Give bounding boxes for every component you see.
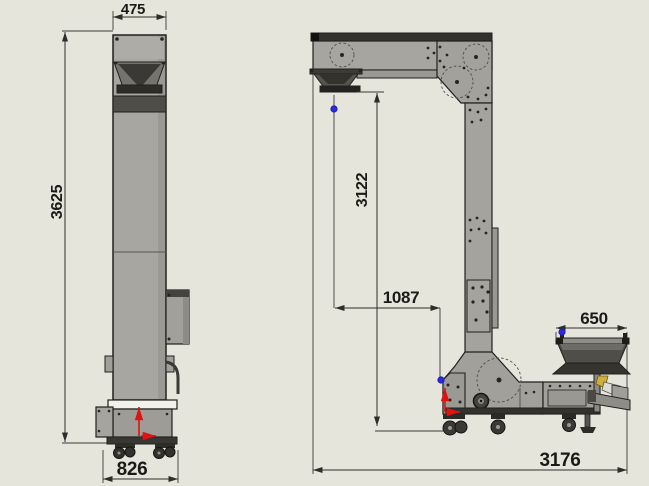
sv-dim-discharge-offset: 1087 [334, 95, 440, 381]
fv-base [96, 400, 177, 444]
dim-label-3122: 3122 [354, 172, 371, 207]
sv-hopper-rim [556, 338, 629, 344]
front-view: 475 3625 826 [49, 1, 189, 483]
dim-label-650: 650 [580, 309, 607, 328]
sv-dim-discharge-height: 3122 [354, 92, 448, 431]
datum-point-infeed [559, 329, 565, 335]
sv-column [465, 103, 498, 358]
fv-base-stripe [108, 400, 177, 409]
sv-column-outer-strip [492, 228, 498, 328]
sv-arm-ledge [357, 70, 437, 78]
sv-bottom-rail [446, 408, 600, 414]
fv-head-panel [115, 37, 164, 59]
fv-dark-band [113, 96, 166, 112]
dim-label-3176: 3176 [539, 450, 580, 471]
side-view: 3122 1087 650 3176 [310, 33, 630, 474]
fv-dim-top-width: 475 [113, 1, 166, 30]
fv-drive-box [166, 290, 189, 344]
sv-bottom-housing [443, 352, 543, 414]
sv-casters [443, 414, 596, 435]
sv-column-panel [467, 280, 490, 332]
dim-label-826: 826 [117, 459, 148, 480]
fv-discharge-funnel [113, 62, 166, 113]
datum-point-discharge [331, 106, 337, 112]
dim-label-475: 475 [121, 1, 145, 18]
sv-rail-panel [548, 390, 586, 406]
sv-hopper-flare [553, 363, 630, 374]
datum-point-inlet [438, 377, 444, 383]
z-elevator-drawing: 475 3625 826 [0, 0, 649, 486]
fv-base-rail [107, 437, 177, 444]
sv-discharge-hopper [310, 69, 362, 92]
sv-dim-infeed-width: 650 [556, 309, 627, 340]
sv-corner-housing [427, 41, 492, 103]
sv-datum-points [331, 106, 565, 383]
fv-feet [114, 444, 176, 459]
sv-leveling-foot [580, 414, 596, 433]
sv-dim-overall-length: 3176 [313, 450, 627, 471]
dim-label-3625: 3625 [49, 184, 66, 219]
technical-drawing-canvas: 475 3625 826 [0, 0, 649, 486]
fv-dim-total-height: 3625 [49, 31, 113, 443]
dim-label-1087: 1087 [383, 288, 420, 307]
